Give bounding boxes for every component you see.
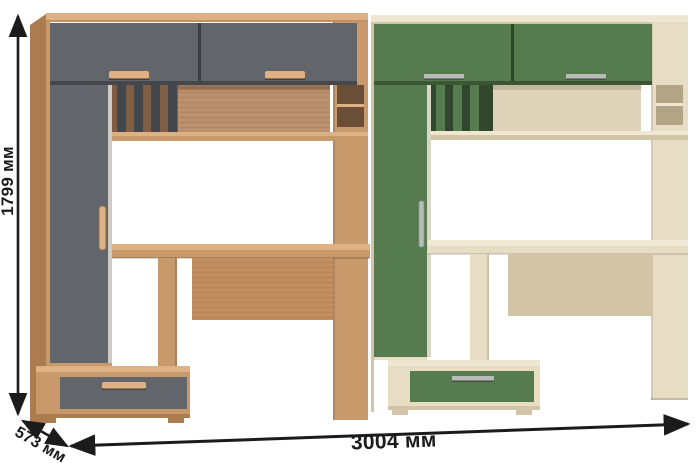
right-wardrobe-bottom-strip (374, 357, 427, 360)
width-dimension: 3004 мм (71, 424, 688, 454)
left-drawer-front (60, 377, 187, 409)
left-desk-leg (158, 258, 177, 366)
handle-shadow (102, 388, 146, 390)
left-unit (30, 13, 370, 429)
right-column-shelf-board (656, 103, 683, 106)
left-drawer-handle (102, 382, 146, 389)
furniture-illustration: 1799 мм 573 мм 3004 мм (0, 0, 700, 463)
right-unit (371, 15, 688, 415)
right-top-door-2 (514, 24, 652, 81)
left-frame-strip (46, 22, 50, 418)
left-pedestal-top (36, 366, 190, 372)
right-drawer-front (410, 371, 534, 402)
right-niche-shadow (493, 85, 641, 90)
left-pedestal-kick (36, 414, 190, 418)
right-unit-right-column (651, 22, 688, 400)
left-bridge-shelf-edge (112, 136, 368, 141)
left-pedestal-foot (40, 418, 56, 423)
height-dimension-label: 1799 мм (0, 146, 17, 216)
right-pedestal-foot (392, 410, 408, 415)
left-column-shelf-board (337, 104, 364, 107)
width-dimension-label: 3004 мм (351, 429, 437, 455)
left-desk-top (112, 244, 370, 250)
right-pedestal-kick (388, 406, 540, 410)
right-bridge-gap-line (374, 81, 652, 85)
right-wardrobe-edge (427, 85, 431, 357)
left-desk-top-edge (112, 250, 370, 258)
right-wardrobe-handle (419, 201, 424, 247)
left-bridge-shelf (112, 132, 368, 136)
depth-dimension: 573 мм (12, 421, 69, 463)
leg-shade (487, 254, 489, 360)
left-modesty-grain (192, 258, 333, 320)
left-bridge-gap-line (50, 81, 357, 85)
left-top-door-2-handle (265, 71, 305, 79)
left-pedestal-foot (168, 418, 184, 423)
right-desk-leg (470, 254, 489, 360)
height-dimension: 1799 мм (0, 16, 18, 414)
handle-shadow (452, 380, 494, 382)
right-pedestal-top (388, 360, 540, 366)
furniture-dimension-image: 1799 мм 573 мм 3004 мм (0, 0, 700, 463)
right-desk-top-edge (428, 246, 688, 254)
right-frame-strip (371, 22, 374, 412)
right-desk-top (428, 240, 688, 246)
handle-shadow (109, 78, 149, 80)
leg-shade (175, 258, 177, 366)
right-slot-dividers (436, 85, 479, 131)
right-bridge-shelf-edge (431, 135, 688, 140)
right-pedestal-foot (516, 410, 532, 415)
right-top-door-divider (511, 24, 514, 81)
left-wardrobe-edge (108, 85, 112, 364)
right-niche-back (493, 85, 641, 131)
left-wardrobe-handle (99, 206, 106, 250)
left-niche-shadow (178, 85, 330, 90)
handle-shadow (424, 78, 464, 80)
cornice-edge (46, 20, 368, 22)
cornice-edge (371, 22, 688, 24)
handle-shadow (566, 78, 606, 80)
right-desk-modesty-panel (508, 254, 653, 316)
handle-shadow (265, 78, 305, 80)
left-niche-grain (178, 85, 330, 132)
left-top-door-divider (198, 23, 201, 81)
left-top-door-1-handle (109, 71, 149, 79)
column-bottom-shade (651, 398, 688, 400)
right-top-door-1 (374, 24, 511, 81)
right-bridge-shelf (431, 131, 688, 135)
left-wardrobe-bottom-strip (50, 363, 112, 366)
